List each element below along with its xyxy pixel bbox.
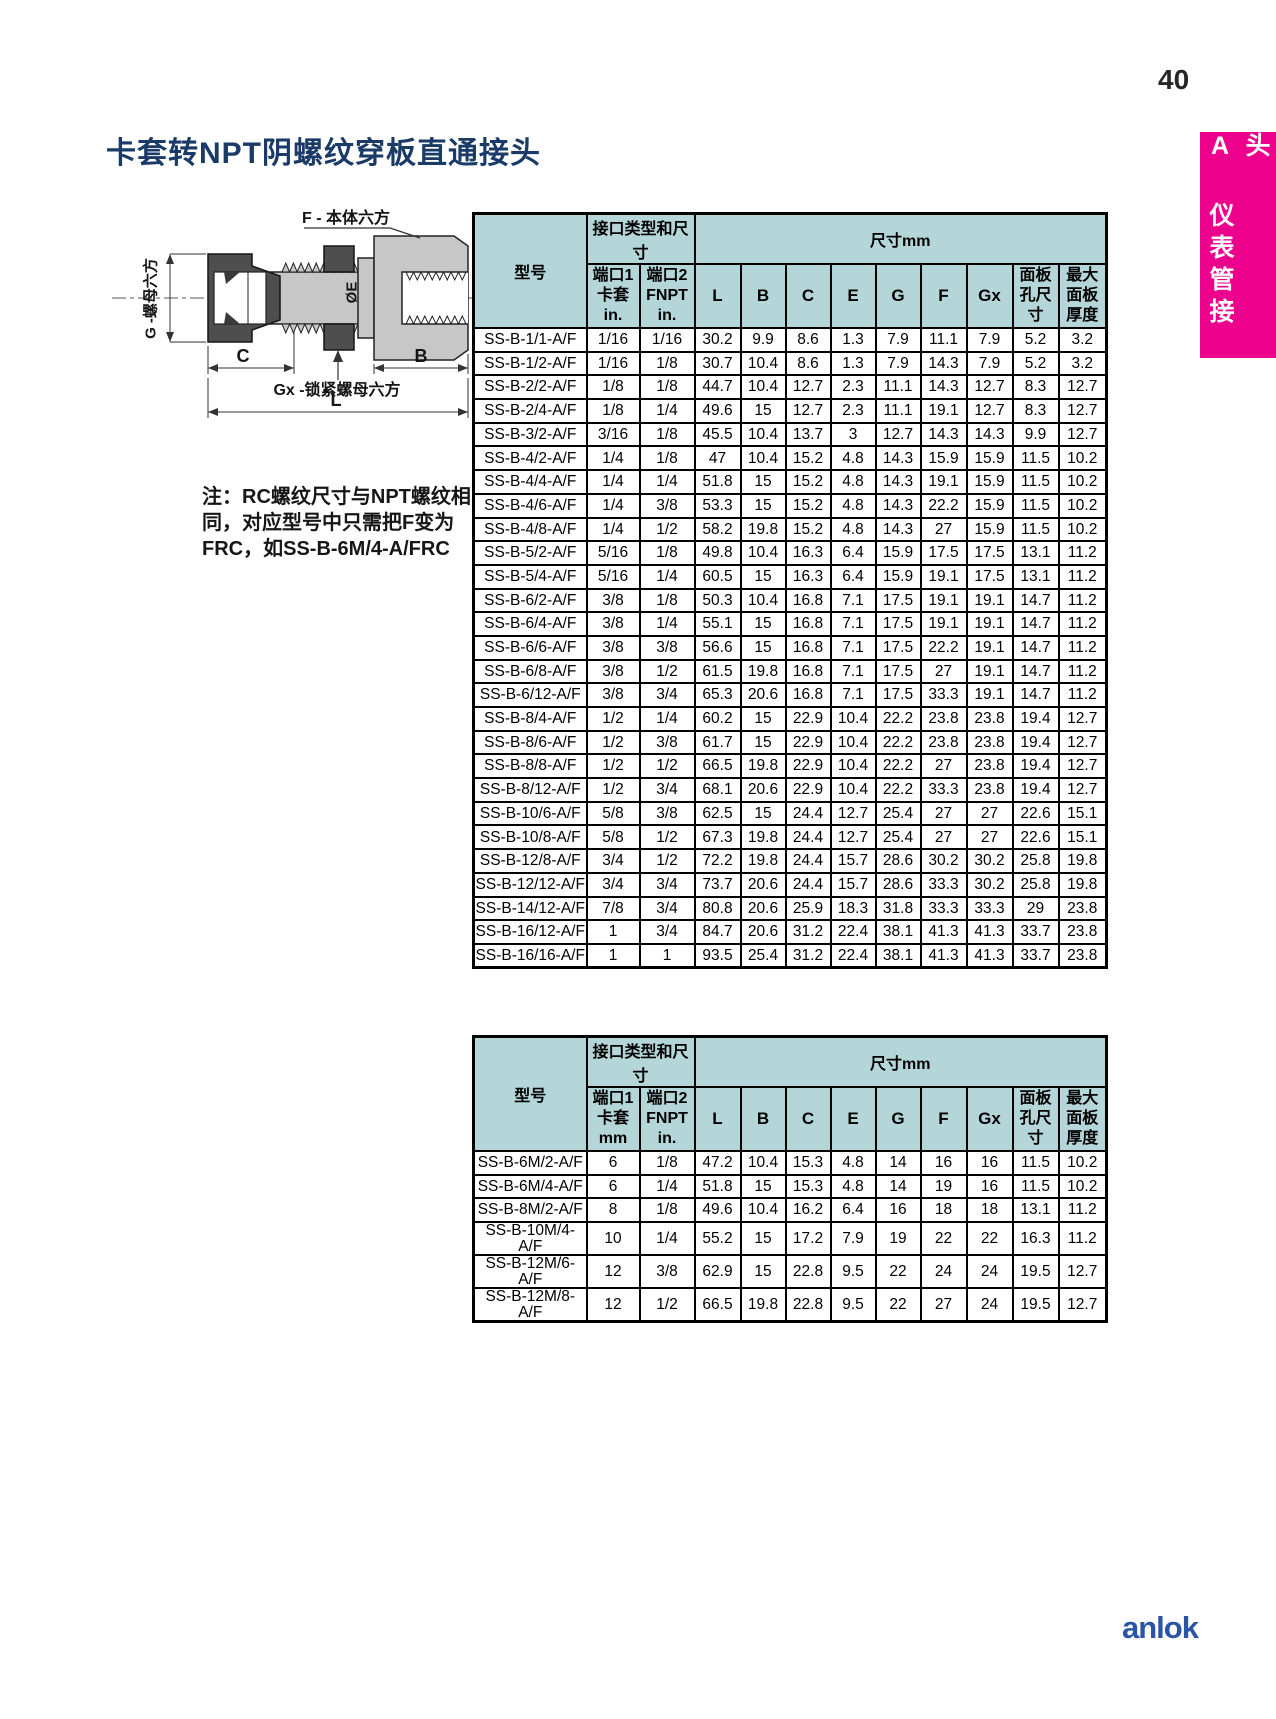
value-cell: 12.7 bbox=[1059, 731, 1107, 755]
value-cell: 38.1 bbox=[876, 944, 921, 968]
table-row: SS-B-8/12-A/F1/23/468.120.622.910.422.23… bbox=[474, 778, 1107, 802]
value-cell: 12.7 bbox=[1059, 423, 1107, 447]
value-cell: 15 bbox=[741, 1175, 786, 1199]
value-cell: 1/4 bbox=[640, 1175, 695, 1199]
value-cell: 15 bbox=[741, 565, 786, 589]
value-cell: 19.1 bbox=[967, 660, 1013, 684]
value-cell: 3/8 bbox=[587, 660, 640, 684]
value-cell: 73.7 bbox=[695, 873, 741, 897]
value-cell: 10.2 bbox=[1059, 1175, 1107, 1199]
value-cell: 5/16 bbox=[587, 565, 640, 589]
value-cell: 11.2 bbox=[1059, 683, 1107, 707]
value-cell: 67.3 bbox=[695, 825, 741, 849]
value-cell: 10.4 bbox=[741, 589, 786, 613]
value-cell: 19.5 bbox=[1013, 1255, 1059, 1288]
value-cell: 11.5 bbox=[1013, 494, 1059, 518]
value-cell: 1/4 bbox=[587, 470, 640, 494]
value-cell: 44.7 bbox=[695, 375, 741, 399]
value-cell: 22.2 bbox=[921, 636, 967, 660]
label-dim-b: B bbox=[404, 346, 438, 367]
value-cell: 58.2 bbox=[695, 518, 741, 542]
value-cell: 3/4 bbox=[640, 683, 695, 707]
value-cell: 4.8 bbox=[831, 518, 876, 542]
value-cell: 3/4 bbox=[640, 778, 695, 802]
value-cell: 14.3 bbox=[921, 423, 967, 447]
value-cell: 15.1 bbox=[1059, 825, 1107, 849]
value-cell: 31.8 bbox=[876, 897, 921, 921]
value-cell: 1/2 bbox=[640, 1288, 695, 1322]
value-cell: 22.2 bbox=[876, 778, 921, 802]
value-cell: 14.7 bbox=[1013, 589, 1059, 613]
value-cell: 13.1 bbox=[1013, 1198, 1059, 1222]
model-cell: SS-B-1/1-A/F bbox=[474, 328, 587, 352]
value-cell: 1/2 bbox=[640, 754, 695, 778]
value-cell: 9.9 bbox=[741, 328, 786, 352]
value-cell: 17.5 bbox=[967, 541, 1013, 565]
value-cell: 17.5 bbox=[967, 565, 1013, 589]
value-cell: 7.1 bbox=[831, 589, 876, 613]
value-cell: 3/8 bbox=[587, 589, 640, 613]
table-row: SS-B-10/8-A/F5/81/267.319.824.412.725.42… bbox=[474, 825, 1107, 849]
value-cell: 19.1 bbox=[967, 589, 1013, 613]
value-cell: 5.2 bbox=[1013, 352, 1059, 376]
value-cell: 19.8 bbox=[741, 660, 786, 684]
value-cell: 11.2 bbox=[1059, 636, 1107, 660]
value-cell: 3/8 bbox=[640, 802, 695, 826]
value-cell: 65.3 bbox=[695, 683, 741, 707]
value-cell: 19.8 bbox=[1059, 873, 1107, 897]
dim-group-header: 尺寸mm bbox=[695, 214, 1107, 265]
value-cell: 11.1 bbox=[876, 399, 921, 423]
value-cell: 11.2 bbox=[1059, 1198, 1107, 1222]
value-cell: 7.9 bbox=[876, 328, 921, 352]
value-cell: 15 bbox=[741, 636, 786, 660]
value-cell: 12.7 bbox=[967, 399, 1013, 423]
value-cell: 60.5 bbox=[695, 565, 741, 589]
value-cell: 23.8 bbox=[1059, 897, 1107, 921]
value-cell: 19.8 bbox=[741, 1288, 786, 1322]
value-cell: 12.7 bbox=[1059, 1288, 1107, 1322]
dim-header: C bbox=[786, 1087, 831, 1151]
value-cell: 33.3 bbox=[921, 897, 967, 921]
value-cell: 3/8 bbox=[587, 636, 640, 660]
value-cell: 93.5 bbox=[695, 944, 741, 968]
value-cell: 11.2 bbox=[1059, 660, 1107, 684]
value-cell: 1/2 bbox=[587, 754, 640, 778]
value-cell: 33.7 bbox=[1013, 944, 1059, 968]
value-cell: 15.3 bbox=[786, 1175, 831, 1199]
value-cell: 47.2 bbox=[695, 1151, 741, 1175]
value-cell: 8.6 bbox=[786, 328, 831, 352]
model-cell: SS-B-6/12-A/F bbox=[474, 683, 587, 707]
value-cell: 41.3 bbox=[921, 944, 967, 968]
value-cell: 27 bbox=[921, 754, 967, 778]
value-cell: 1/16 bbox=[587, 328, 640, 352]
value-cell: 24.4 bbox=[786, 825, 831, 849]
value-cell: 7.9 bbox=[967, 328, 1013, 352]
value-cell: 20.6 bbox=[741, 683, 786, 707]
dim-header: B bbox=[741, 264, 786, 328]
value-cell: 51.8 bbox=[695, 470, 741, 494]
table-row: SS-B-8/6-A/F1/23/861.71522.910.422.223.8… bbox=[474, 731, 1107, 755]
dim-header: C bbox=[786, 264, 831, 328]
value-cell: 1/4 bbox=[640, 470, 695, 494]
value-cell: 11.2 bbox=[1059, 612, 1107, 636]
value-cell: 56.6 bbox=[695, 636, 741, 660]
value-cell: 16.3 bbox=[786, 565, 831, 589]
value-cell: 16.2 bbox=[786, 1198, 831, 1222]
value-cell: 23.8 bbox=[967, 731, 1013, 755]
value-cell: 27 bbox=[921, 802, 967, 826]
table-row: SS-B-8M/2-A/F81/849.610.416.26.416181813… bbox=[474, 1198, 1107, 1222]
value-cell: 18.3 bbox=[831, 897, 876, 921]
value-cell: 1/16 bbox=[587, 352, 640, 376]
table-row: SS-B-12/8-A/F3/41/272.219.824.415.728.63… bbox=[474, 849, 1107, 873]
model-cell: SS-B-5/2-A/F bbox=[474, 541, 587, 565]
model-header: 型号 bbox=[474, 1037, 587, 1152]
value-cell: 1/4 bbox=[587, 518, 640, 542]
value-cell: 51.8 bbox=[695, 1175, 741, 1199]
value-cell: 22.6 bbox=[1013, 825, 1059, 849]
value-cell: 14.7 bbox=[1013, 612, 1059, 636]
value-cell: 1.3 bbox=[831, 328, 876, 352]
model-cell: SS-B-12M/8-A/F bbox=[474, 1288, 587, 1322]
value-cell: 19 bbox=[876, 1222, 921, 1255]
value-cell: 12.7 bbox=[1059, 399, 1107, 423]
port2-header: 端口2 FNPT in. bbox=[640, 1087, 695, 1151]
catalog-page: 40 A 仪表管接头 卡套转NPT阴螺纹穿板直通接头 bbox=[0, 0, 1276, 1719]
value-cell: 1/4 bbox=[640, 707, 695, 731]
port2-header: 端口2 FNPT in. bbox=[640, 264, 695, 328]
value-cell: 6.4 bbox=[831, 541, 876, 565]
value-cell: 10.2 bbox=[1059, 518, 1107, 542]
value-cell: 24 bbox=[967, 1255, 1013, 1288]
table-row: SS-B-6/6-A/F3/83/856.61516.87.117.522.21… bbox=[474, 636, 1107, 660]
value-cell: 19.1 bbox=[967, 612, 1013, 636]
value-cell: 12.7 bbox=[1059, 707, 1107, 731]
value-cell: 19.4 bbox=[1013, 731, 1059, 755]
dim-header: L bbox=[695, 264, 741, 328]
value-cell: 1/2 bbox=[640, 825, 695, 849]
value-cell: 1/8 bbox=[640, 1151, 695, 1175]
value-cell: 16.8 bbox=[786, 612, 831, 636]
value-cell: 16 bbox=[876, 1198, 921, 1222]
value-cell: 10.4 bbox=[741, 446, 786, 470]
value-cell: 7.1 bbox=[831, 612, 876, 636]
value-cell: 19.1 bbox=[921, 565, 967, 589]
value-cell: 8.3 bbox=[1013, 375, 1059, 399]
table-row: SS-B-6/2-A/F3/81/850.310.416.87.117.519.… bbox=[474, 589, 1107, 613]
table-row: SS-B-2/2-A/F1/81/844.710.412.72.311.114.… bbox=[474, 375, 1107, 399]
value-cell: 33.3 bbox=[921, 873, 967, 897]
value-cell: 18 bbox=[967, 1198, 1013, 1222]
dim-header: F bbox=[921, 1087, 967, 1151]
value-cell: 15.9 bbox=[876, 565, 921, 589]
value-cell: 1/2 bbox=[640, 849, 695, 873]
value-cell: 11.5 bbox=[1013, 518, 1059, 542]
value-cell: 3/4 bbox=[587, 849, 640, 873]
value-cell: 10.2 bbox=[1059, 494, 1107, 518]
value-cell: 33.7 bbox=[1013, 920, 1059, 944]
header-group-row: 型号 接口类型和尺寸 尺寸mm bbox=[474, 1037, 1107, 1088]
value-cell: 12.7 bbox=[1059, 1255, 1107, 1288]
value-cell: 1/8 bbox=[640, 423, 695, 447]
value-cell: 4.8 bbox=[831, 494, 876, 518]
value-cell: 1 bbox=[640, 944, 695, 968]
value-cell: 47 bbox=[695, 446, 741, 470]
port1-header: 端口1 卡套 mm bbox=[587, 1087, 640, 1151]
value-cell: 22.2 bbox=[876, 731, 921, 755]
value-cell: 16.3 bbox=[1013, 1222, 1059, 1255]
value-cell: 61.7 bbox=[695, 731, 741, 755]
value-cell: 23.8 bbox=[967, 754, 1013, 778]
value-cell: 10.4 bbox=[831, 731, 876, 755]
technical-drawing: F - 本体六方 G -螺母六方 ØE C B Gx -锁紧螺母六方 L bbox=[104, 188, 476, 434]
value-cell: 41.3 bbox=[967, 944, 1013, 968]
value-cell: 22.9 bbox=[786, 707, 831, 731]
value-cell: 19.4 bbox=[1013, 754, 1059, 778]
value-cell: 50.3 bbox=[695, 589, 741, 613]
value-cell: 27 bbox=[921, 660, 967, 684]
value-cell: 6.4 bbox=[831, 565, 876, 589]
value-cell: 11.2 bbox=[1059, 589, 1107, 613]
value-cell: 19.8 bbox=[741, 754, 786, 778]
value-cell: 15 bbox=[741, 470, 786, 494]
value-cell: 12.7 bbox=[831, 825, 876, 849]
value-cell: 33.3 bbox=[967, 897, 1013, 921]
model-cell: SS-B-16/12-A/F bbox=[474, 920, 587, 944]
value-cell: 14.3 bbox=[876, 470, 921, 494]
model-cell: SS-B-1/2-A/F bbox=[474, 352, 587, 376]
value-cell: 15.2 bbox=[786, 446, 831, 470]
value-cell: 80.8 bbox=[695, 897, 741, 921]
value-cell: 1/8 bbox=[587, 399, 640, 423]
model-cell: SS-B-8/4-A/F bbox=[474, 707, 587, 731]
value-cell: 15.9 bbox=[876, 541, 921, 565]
value-cell: 19.1 bbox=[921, 470, 967, 494]
table-row: SS-B-1/2-A/F1/161/830.710.48.61.37.914.3… bbox=[474, 352, 1107, 376]
model-cell: SS-B-12/8-A/F bbox=[474, 849, 587, 873]
value-cell: 5/8 bbox=[587, 802, 640, 826]
value-cell: 23.8 bbox=[921, 707, 967, 731]
value-cell: 62.9 bbox=[695, 1255, 741, 1288]
value-cell: 60.2 bbox=[695, 707, 741, 731]
value-cell: 1/4 bbox=[640, 1222, 695, 1255]
model-cell: SS-B-8M/2-A/F bbox=[474, 1198, 587, 1222]
label-body-hex: F - 本体六方 bbox=[302, 204, 390, 228]
value-cell: 1/2 bbox=[640, 518, 695, 542]
value-cell: 17.5 bbox=[876, 683, 921, 707]
label-dim-c: C bbox=[226, 346, 260, 367]
value-cell: 15.9 bbox=[967, 470, 1013, 494]
table-row: SS-B-6/8-A/F3/81/261.519.816.87.117.5271… bbox=[474, 660, 1107, 684]
value-cell: 1/4 bbox=[587, 494, 640, 518]
value-cell: 7.1 bbox=[831, 636, 876, 660]
value-cell: 27 bbox=[921, 825, 967, 849]
value-cell: 49.6 bbox=[695, 1198, 741, 1222]
value-cell: 2.3 bbox=[831, 375, 876, 399]
value-cell: 10.4 bbox=[741, 375, 786, 399]
value-cell: 84.7 bbox=[695, 920, 741, 944]
table-row: SS-B-6/12-A/F3/83/465.320.616.87.117.533… bbox=[474, 683, 1107, 707]
value-cell: 66.5 bbox=[695, 1288, 741, 1322]
value-cell: 15 bbox=[741, 1222, 786, 1255]
port1-header: 端口1 卡套 in. bbox=[587, 264, 640, 328]
table-row: SS-B-10/6-A/F5/83/862.51524.412.725.4272… bbox=[474, 802, 1107, 826]
value-cell: 3.2 bbox=[1059, 328, 1107, 352]
spec-table-1: 型号 接口类型和尺寸 尺寸mm 端口1 卡套 in. 端口2 FNPT in. … bbox=[472, 212, 1108, 969]
value-cell: 14.7 bbox=[1013, 660, 1059, 684]
table-row: SS-B-5/4-A/F5/161/460.51516.36.415.919.1… bbox=[474, 565, 1107, 589]
model-cell: SS-B-6M/2-A/F bbox=[474, 1151, 587, 1175]
value-cell: 8.3 bbox=[1013, 399, 1059, 423]
value-cell: 3.2 bbox=[1059, 352, 1107, 376]
value-cell: 19.8 bbox=[741, 518, 786, 542]
value-cell: 20.6 bbox=[741, 873, 786, 897]
value-cell: 15 bbox=[741, 1255, 786, 1288]
value-cell: 22 bbox=[921, 1222, 967, 1255]
dim-header: Gx bbox=[967, 1087, 1013, 1151]
value-cell: 19.8 bbox=[741, 825, 786, 849]
value-cell: 15.3 bbox=[786, 1151, 831, 1175]
value-cell: 10.4 bbox=[741, 541, 786, 565]
model-cell: SS-B-16/16-A/F bbox=[474, 944, 587, 968]
port-group-header: 接口类型和尺寸 bbox=[587, 1037, 695, 1088]
value-cell: 19.1 bbox=[921, 399, 967, 423]
value-cell: 1/8 bbox=[640, 352, 695, 376]
value-cell: 15.9 bbox=[967, 518, 1013, 542]
value-cell: 10.4 bbox=[831, 707, 876, 731]
value-cell: 9.5 bbox=[831, 1255, 876, 1288]
model-cell: SS-B-6M/4-A/F bbox=[474, 1175, 587, 1199]
value-cell: 22.8 bbox=[786, 1288, 831, 1322]
label-bore-diameter: ØE bbox=[344, 278, 361, 308]
value-cell: 12.7 bbox=[1059, 375, 1107, 399]
model-cell: SS-B-12/12-A/F bbox=[474, 873, 587, 897]
value-cell: 17.5 bbox=[876, 612, 921, 636]
model-cell: SS-B-2/2-A/F bbox=[474, 375, 587, 399]
value-cell: 10.4 bbox=[741, 1151, 786, 1175]
value-cell: 3/16 bbox=[587, 423, 640, 447]
value-cell: 1/2 bbox=[587, 731, 640, 755]
table-row: SS-B-4/2-A/F1/41/84710.415.24.814.315.91… bbox=[474, 446, 1107, 470]
value-cell: 1/2 bbox=[640, 660, 695, 684]
value-cell: 19.5 bbox=[1013, 1288, 1059, 1322]
value-cell: 14 bbox=[876, 1175, 921, 1199]
table-row: SS-B-4/6-A/F1/43/853.31515.24.814.322.21… bbox=[474, 494, 1107, 518]
value-cell: 3/8 bbox=[587, 612, 640, 636]
value-cell: 38.1 bbox=[876, 920, 921, 944]
value-cell: 14.3 bbox=[876, 518, 921, 542]
value-cell: 72.2 bbox=[695, 849, 741, 873]
dim-header: B bbox=[741, 1087, 786, 1151]
value-cell: 1/8 bbox=[640, 541, 695, 565]
value-cell: 7.9 bbox=[967, 352, 1013, 376]
dim-header: E bbox=[831, 1087, 876, 1151]
value-cell: 11.2 bbox=[1059, 565, 1107, 589]
value-cell: 24.4 bbox=[786, 873, 831, 897]
value-cell: 3/8 bbox=[640, 494, 695, 518]
value-cell: 10.2 bbox=[1059, 470, 1107, 494]
model-cell: SS-B-5/4-A/F bbox=[474, 565, 587, 589]
value-cell: 1/2 bbox=[587, 707, 640, 731]
value-cell: 15.2 bbox=[786, 518, 831, 542]
value-cell: 62.5 bbox=[695, 802, 741, 826]
value-cell: 22.2 bbox=[921, 494, 967, 518]
value-cell: 19.1 bbox=[967, 636, 1013, 660]
model-cell: SS-B-4/8-A/F bbox=[474, 518, 587, 542]
value-cell: 16.8 bbox=[786, 660, 831, 684]
value-cell: 31.2 bbox=[786, 920, 831, 944]
value-cell: 8 bbox=[587, 1198, 640, 1222]
value-cell: 7/8 bbox=[587, 897, 640, 921]
value-cell: 22.4 bbox=[831, 944, 876, 968]
model-cell: SS-B-10M/4-A/F bbox=[474, 1222, 587, 1255]
table-row: SS-B-2/4-A/F1/81/449.61512.72.311.119.11… bbox=[474, 399, 1107, 423]
value-cell: 14.3 bbox=[921, 375, 967, 399]
value-cell: 3/8 bbox=[587, 683, 640, 707]
value-cell: 5.2 bbox=[1013, 328, 1059, 352]
model-cell: SS-B-10/6-A/F bbox=[474, 802, 587, 826]
table-row: SS-B-1/1-A/F1/161/1630.29.98.61.37.911.1… bbox=[474, 328, 1107, 352]
value-cell: 1/4 bbox=[640, 399, 695, 423]
value-cell: 3/8 bbox=[640, 731, 695, 755]
table-row: SS-B-16/12-A/F13/484.720.631.222.438.141… bbox=[474, 920, 1107, 944]
value-cell: 16 bbox=[967, 1175, 1013, 1199]
label-dim-l: L bbox=[322, 390, 350, 411]
table-row: SS-B-4/4-A/F1/41/451.81515.24.814.319.11… bbox=[474, 470, 1107, 494]
value-cell: 12.7 bbox=[967, 375, 1013, 399]
value-cell: 1/8 bbox=[640, 1198, 695, 1222]
value-cell: 15.9 bbox=[967, 446, 1013, 470]
model-cell: SS-B-14/12-A/F bbox=[474, 897, 587, 921]
value-cell: 12.7 bbox=[1059, 778, 1107, 802]
dim-header: F bbox=[921, 264, 967, 328]
value-cell: 7.9 bbox=[831, 1222, 876, 1255]
brand-logo: anlok bbox=[1122, 1610, 1198, 1646]
model-cell: SS-B-6/2-A/F bbox=[474, 589, 587, 613]
value-cell: 12.7 bbox=[876, 423, 921, 447]
value-cell: 30.2 bbox=[967, 849, 1013, 873]
dim-group-header: 尺寸mm bbox=[695, 1037, 1107, 1088]
value-cell: 14.7 bbox=[1013, 636, 1059, 660]
value-cell: 25.4 bbox=[876, 825, 921, 849]
value-cell: 19.8 bbox=[1059, 849, 1107, 873]
value-cell: 10.4 bbox=[831, 778, 876, 802]
value-cell: 45.5 bbox=[695, 423, 741, 447]
table-row: SS-B-6M/4-A/F61/451.81515.34.814191611.5… bbox=[474, 1175, 1107, 1199]
max-thickness-header: 最大 面板 厚度 bbox=[1059, 264, 1107, 328]
value-cell: 15 bbox=[741, 731, 786, 755]
value-cell: 1/8 bbox=[640, 446, 695, 470]
value-cell: 23.8 bbox=[967, 707, 1013, 731]
value-cell: 9.5 bbox=[831, 1288, 876, 1322]
value-cell: 6 bbox=[587, 1175, 640, 1199]
value-cell: 55.2 bbox=[695, 1222, 741, 1255]
dim-header: G bbox=[876, 1087, 921, 1151]
value-cell: 10.4 bbox=[741, 1198, 786, 1222]
value-cell: 53.3 bbox=[695, 494, 741, 518]
value-cell: 19.4 bbox=[1013, 707, 1059, 731]
value-cell: 19.1 bbox=[921, 612, 967, 636]
value-cell: 20.6 bbox=[741, 778, 786, 802]
dim-header: L bbox=[695, 1087, 741, 1151]
value-cell: 14.3 bbox=[876, 446, 921, 470]
port-group-header: 接口类型和尺寸 bbox=[587, 214, 695, 265]
value-cell: 22.9 bbox=[786, 778, 831, 802]
value-cell: 1/8 bbox=[640, 375, 695, 399]
value-cell: 12.7 bbox=[786, 375, 831, 399]
